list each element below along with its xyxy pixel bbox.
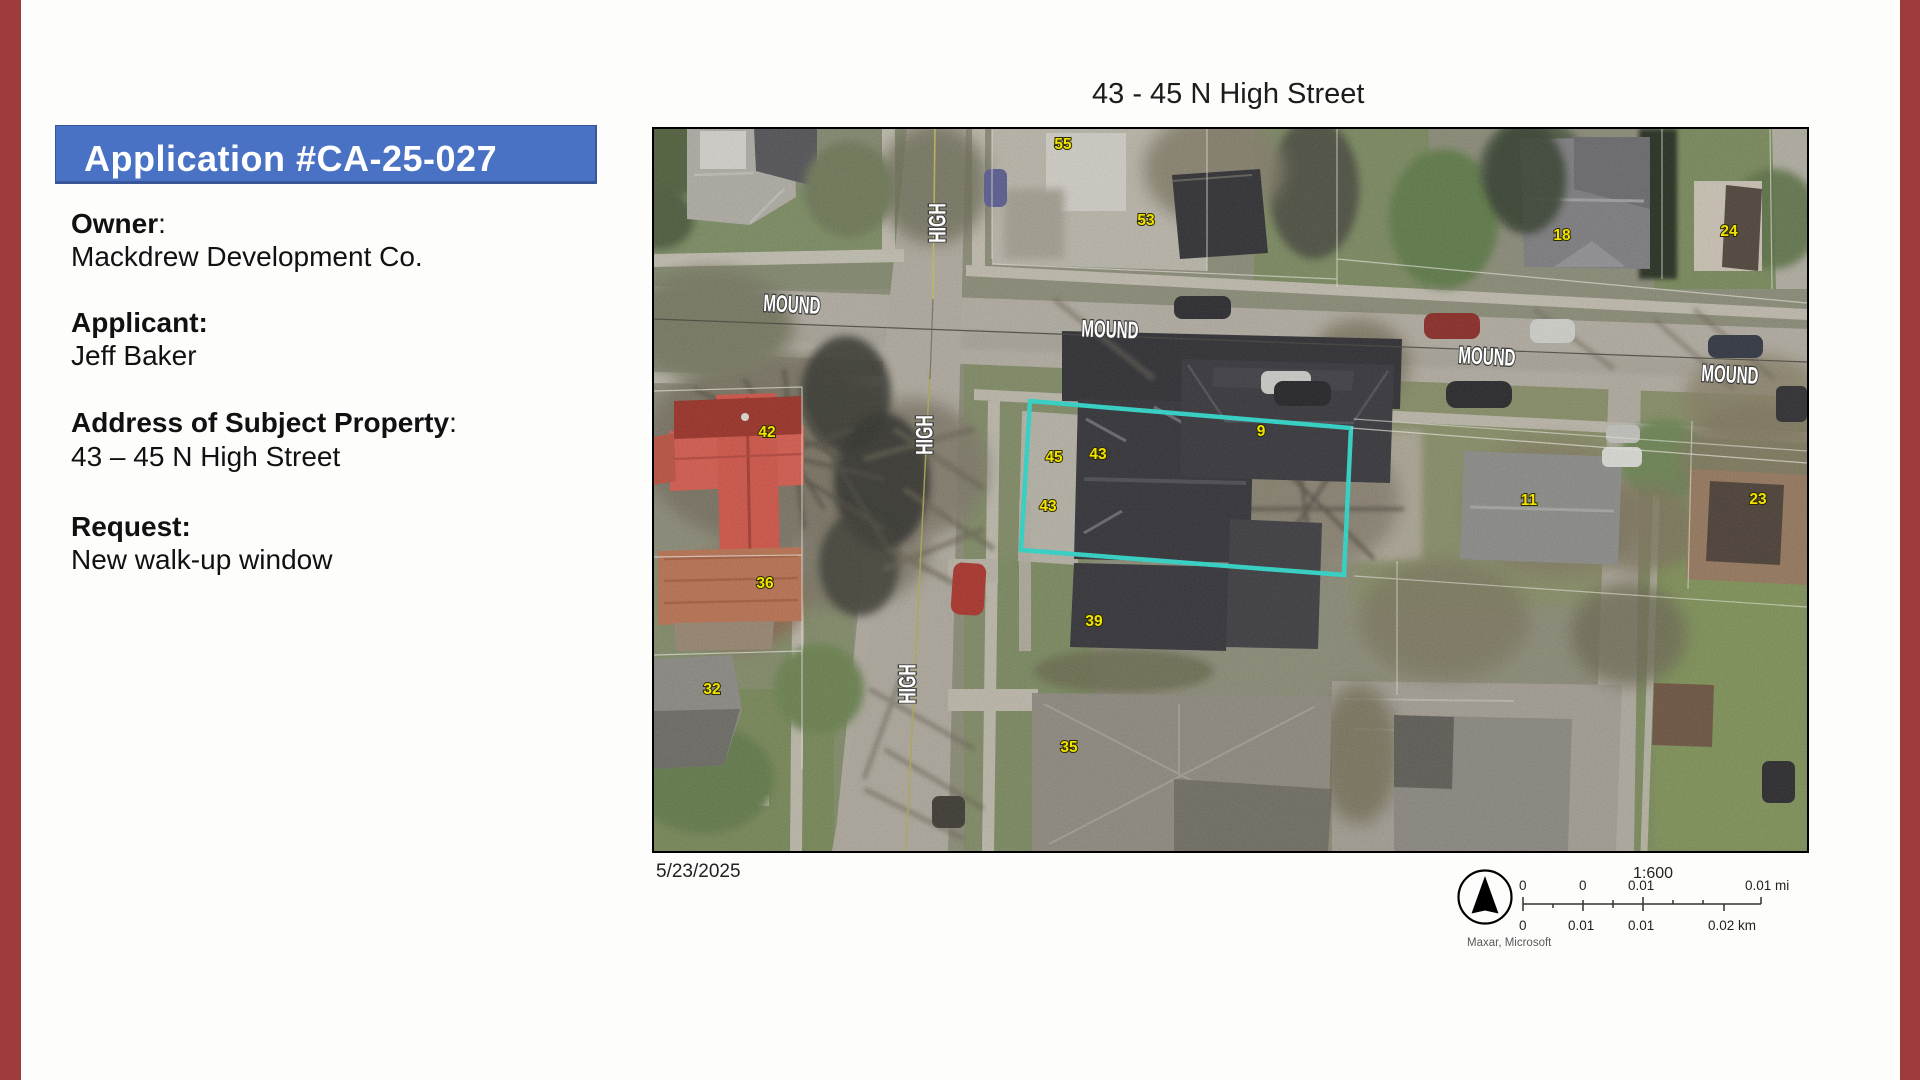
svg-text:0.01 mi: 0.01 mi <box>1745 878 1789 893</box>
svg-text:0.02 km: 0.02 km <box>1708 918 1756 933</box>
svg-text:HIGH: HIGH <box>925 203 951 243</box>
svg-text:MOUND: MOUND <box>763 291 821 320</box>
svg-text:0: 0 <box>1579 878 1587 893</box>
svg-text:HIGH: HIGH <box>912 415 938 455</box>
svg-text:0: 0 <box>1519 878 1527 893</box>
svg-text:HIGH: HIGH <box>895 664 921 704</box>
svg-text:43: 43 <box>1039 498 1057 515</box>
svg-text:35: 35 <box>1060 739 1078 756</box>
svg-text:39: 39 <box>1085 613 1103 630</box>
svg-text:MOUND: MOUND <box>1458 343 1516 372</box>
svg-text:42: 42 <box>758 424 775 441</box>
svg-text:36: 36 <box>756 575 774 592</box>
svg-text:53: 53 <box>1137 212 1155 229</box>
svg-text:18: 18 <box>1553 227 1571 244</box>
svg-text:43: 43 <box>1089 446 1107 463</box>
svg-text:32: 32 <box>703 681 720 698</box>
svg-text:MOUND: MOUND <box>1081 316 1139 344</box>
svg-text:55: 55 <box>1054 136 1072 153</box>
svg-text:45: 45 <box>1045 449 1063 466</box>
svg-text:0: 0 <box>1519 918 1527 933</box>
svg-text:0.01: 0.01 <box>1628 878 1654 893</box>
svg-text:9: 9 <box>1257 423 1266 440</box>
svg-text:0.01: 0.01 <box>1568 918 1594 933</box>
svg-text:23: 23 <box>1749 491 1767 508</box>
svg-text:0.01: 0.01 <box>1628 918 1654 933</box>
svg-text:24: 24 <box>1720 223 1738 240</box>
svg-text:11: 11 <box>1521 492 1538 509</box>
svg-text:MOUND: MOUND <box>1701 361 1759 390</box>
